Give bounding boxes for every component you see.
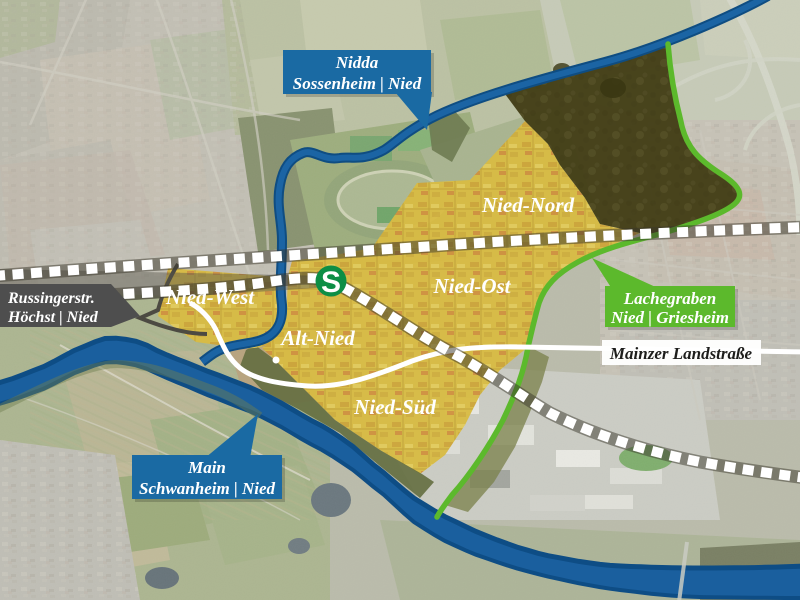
svg-text:Nied | Griesheim: Nied | Griesheim xyxy=(610,308,729,327)
svg-text:S: S xyxy=(321,266,341,299)
svg-text:Nied-West: Nied-West xyxy=(165,285,255,309)
svg-text:Nied-Nord: Nied-Nord xyxy=(481,193,575,217)
svg-text:Mainzer Landstraße: Mainzer Landstraße xyxy=(609,344,753,363)
svg-text:Nied-Süd: Nied-Süd xyxy=(353,395,436,419)
svg-text:Main: Main xyxy=(187,458,226,477)
svg-text:Lachegraben: Lachegraben xyxy=(623,289,717,308)
svg-text:Sossenheim | Nied: Sossenheim | Nied xyxy=(293,74,422,93)
svg-text:Höchst | Nied: Höchst | Nied xyxy=(7,309,99,326)
svg-text:Russingerstr.: Russingerstr. xyxy=(7,290,95,307)
svg-text:Schwanheim | Nied: Schwanheim | Nied xyxy=(139,479,275,498)
svg-text:Nidda: Nidda xyxy=(335,53,379,72)
svg-text:Nied-Ost: Nied-Ost xyxy=(433,274,512,298)
svg-text:Alt-Nied: Alt-Nied xyxy=(279,326,355,350)
